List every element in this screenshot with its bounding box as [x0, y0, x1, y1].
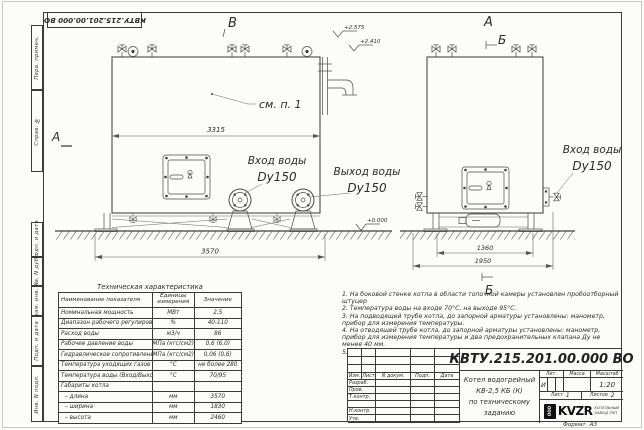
table-row: – высотамм2460: [59, 412, 241, 423]
col-podp: Подп.: [411, 373, 435, 380]
rev-row-label: Утв.: [348, 415, 376, 422]
format-label: ФорматА3: [535, 422, 625, 428]
company-logo-icon: ООО: [544, 404, 556, 419]
margin-cell-sprav-n: Справ. №: [31, 90, 43, 172]
rev-row-label: Т.контр.: [348, 394, 376, 401]
scale-value: 1:20: [591, 378, 623, 392]
margin-cell-vzam-inv: Взам. инв. N: [31, 286, 43, 316]
table-row: – ширинамм1830: [59, 402, 241, 413]
title-block: Изм. Лист N докум. Подп. Дата Разраб. Пр…: [347, 348, 622, 422]
company-logo: ООО KVZR КОТЕЛЬНЫЙ ЗАВОД РЭП: [540, 400, 623, 423]
document-designation: КВТУ.215.201.00.000 ВО: [459, 349, 623, 371]
note-item: 4. На отводящей трубе котла, до запорной…: [342, 328, 620, 349]
tech-table: Наименование показателя Единицы измерени…: [58, 292, 242, 424]
table-row: Расход водым3/ч86: [59, 328, 241, 339]
margin-cell-podp-data-2: Подп. и дата: [31, 316, 43, 366]
mass-header: Масса: [564, 371, 592, 378]
company-logo-text: KVZR: [558, 404, 593, 418]
top-designation-box: КВТУ.215.201.00.000 ВО: [47, 12, 142, 28]
tech-col-units: Единицы измерения: [153, 293, 195, 307]
rev-row-label: [348, 401, 376, 408]
lit-value: И: [540, 378, 548, 392]
revision-table: Изм. Лист N докум. Подп. Дата Разраб. Пр…: [348, 349, 459, 423]
company-subtitle: КОТЕЛЬНЫЙ ЗАВОД РЭП: [594, 406, 619, 415]
table-row: Рабочее давление водыМПа (кгс/см2)0,6 (6…: [59, 339, 241, 350]
lit-header: Лит.: [540, 371, 564, 378]
col-izm: Изм.: [348, 373, 362, 380]
scale-header: Масштаб: [591, 371, 623, 378]
note-item: 3. На подводящей трубе котла, до запорно…: [342, 314, 620, 328]
tech-col-value: Значение: [195, 293, 241, 307]
col-doc: N докум.: [376, 373, 411, 380]
table-row: – длинамм3570: [59, 391, 241, 402]
table-row: Гидравлическое сопротивление котлаМПа (к…: [59, 349, 241, 360]
tech-col-name: Наименование показателя: [59, 293, 153, 307]
margin-cell-inv-podl: Инв. N подл.: [31, 366, 43, 422]
product-title: Котел водогрейный КВ-2,5 КБ (К) по техни…: [459, 371, 539, 423]
top-designation-text: КВТУ.215.201.00.000 ВО: [44, 16, 146, 25]
rev-row-label: Н.контр.: [348, 408, 376, 415]
note-item: 1. На боковой стенке котла в области топ…: [342, 292, 620, 306]
rev-row-label: Разраб.: [348, 380, 376, 387]
sheet-cell: Лист 1: [540, 392, 582, 400]
margin-cell-perv-primen: Перв. примен.: [31, 25, 43, 90]
col-list: Лист: [362, 373, 376, 380]
table-row: Температура воды (Вход/Выход)°С70/95: [59, 370, 241, 381]
tech-table-header: Наименование показателя Единицы измерени…: [59, 293, 241, 307]
sheets-total: 2: [611, 392, 615, 399]
title-block-right: Лит. Масса Масштаб И 1:20 Лист 1 Листов …: [539, 371, 623, 423]
tech-table-title: Техническая характеристика: [58, 283, 242, 291]
table-row: Диапазон рабочего регулирования%40-110: [59, 318, 241, 329]
table-row: Габариты котла: [59, 381, 241, 392]
sheets-cell: Листов 2: [582, 392, 624, 400]
table-row: Температура уходящих газов°Сне более 280: [59, 360, 241, 371]
rev-row-label: Пров.: [348, 387, 376, 394]
col-data: Дата: [435, 373, 459, 380]
format-value: А3: [590, 422, 597, 428]
mass-value: [564, 378, 592, 392]
sheet-number: 1: [566, 392, 570, 399]
table-row: Номинальная мощностьМВт2,5: [59, 307, 241, 318]
